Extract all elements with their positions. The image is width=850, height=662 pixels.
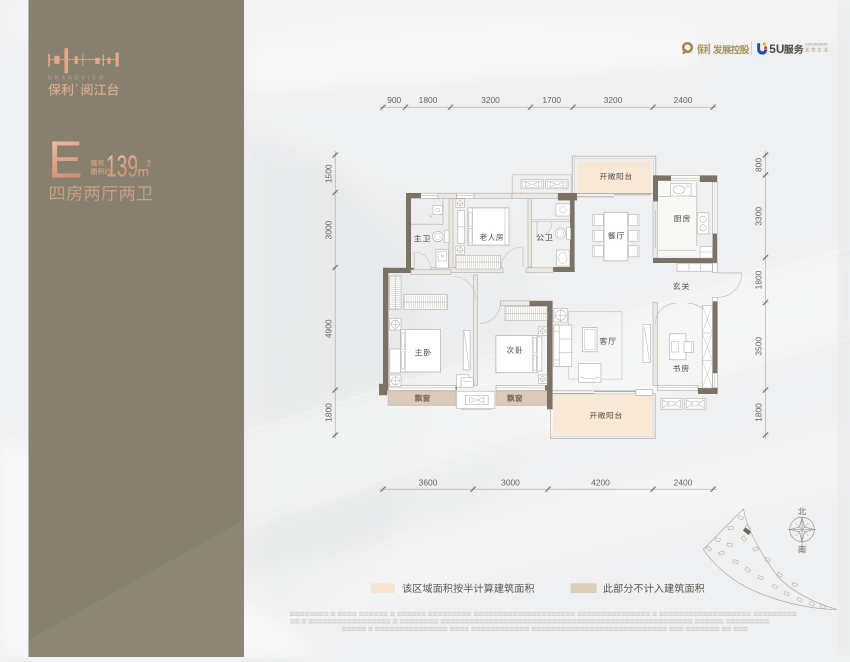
svg-text:4200: 4200 [591, 477, 610, 487]
svg-text:1800: 1800 [754, 403, 764, 422]
svg-text:3200: 3200 [481, 95, 500, 105]
svg-text:2: 2 [147, 160, 152, 169]
svg-text:1700: 1700 [542, 95, 561, 105]
svg-text:1500: 1500 [323, 164, 333, 183]
svg-text:5U: 5U [769, 42, 784, 56]
svg-text:2400: 2400 [674, 95, 693, 105]
svg-text:GRANDVIEW: GRANDVIEW [48, 76, 107, 82]
svg-text:900: 900 [387, 95, 401, 105]
svg-text:3300: 3300 [754, 207, 764, 226]
svg-text:E: E [48, 132, 83, 190]
svg-text:3600: 3600 [419, 477, 438, 487]
svg-text:1800: 1800 [754, 270, 764, 289]
svg-text:3500: 3500 [754, 337, 764, 356]
svg-text:3200: 3200 [604, 95, 623, 105]
svg-text:4900: 4900 [323, 319, 333, 338]
svg-text:3000: 3000 [501, 477, 520, 487]
svg-text:139: 139 [106, 150, 138, 184]
svg-text:800: 800 [754, 158, 764, 172]
svg-text:2400: 2400 [674, 477, 693, 487]
svg-text:®: ® [708, 43, 711, 47]
svg-text:1800: 1800 [323, 403, 333, 422]
svg-text:3000: 3000 [323, 220, 333, 239]
svg-text:CUSTOMER SERVICE: CUSTOMER SERVICE [805, 42, 829, 46]
svg-text:1800: 1800 [419, 95, 438, 105]
